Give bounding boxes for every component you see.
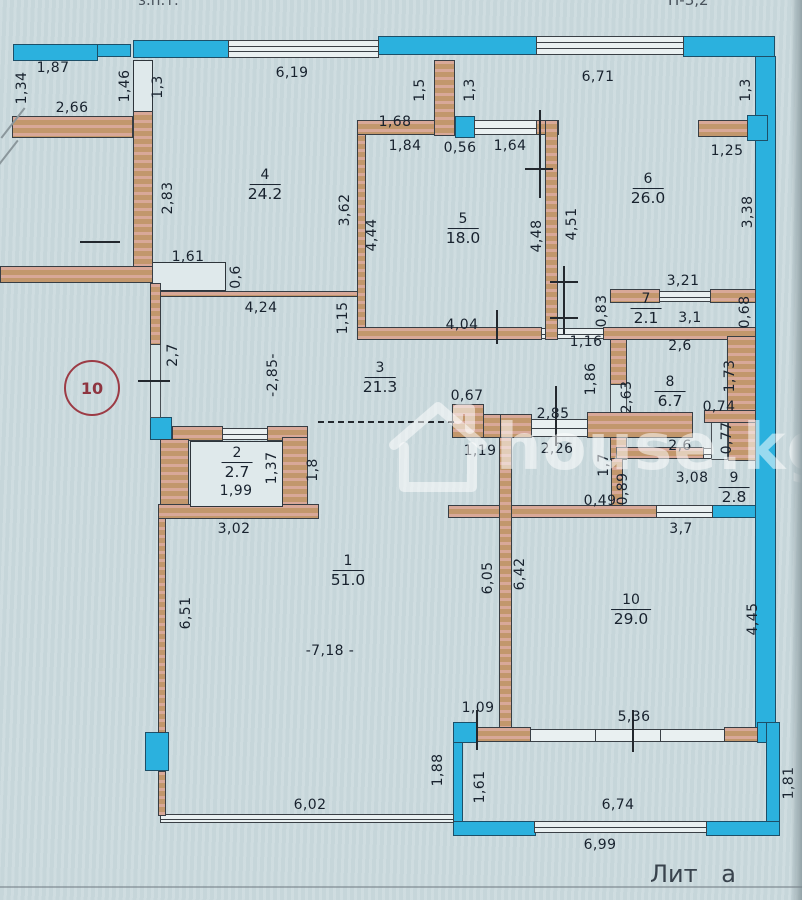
dimension-label: 1,3	[150, 75, 166, 98]
room-area: 51.0	[331, 572, 366, 588]
glazing-top-right	[683, 36, 775, 57]
dimension-label: 1,3	[462, 78, 478, 101]
dimension-label: 2,66	[56, 100, 89, 116]
dimension-label: 1,25	[711, 143, 744, 159]
room-area: 26.0	[631, 190, 666, 206]
wall	[545, 120, 558, 340]
dimension-label: 2,83	[160, 182, 176, 215]
balcony-corner-left	[453, 722, 477, 743]
dimension-label: 4,24	[245, 300, 278, 316]
dimension-label: 1,99	[220, 483, 253, 499]
top-fragment-right: Н-3,2	[668, 0, 709, 9]
dimension-label: 0,83	[594, 295, 610, 328]
room-area: 2.7	[222, 464, 253, 480]
witness-line	[539, 110, 541, 198]
witness-line	[563, 266, 565, 334]
dimension-label: -2,85-	[265, 353, 281, 397]
dimension-label: 5,36	[618, 709, 651, 725]
dimension-label: 6,19	[276, 65, 309, 81]
dimension-label: 1,3	[738, 78, 754, 101]
room-label-4: 424.2	[248, 166, 283, 202]
dimension-label: 0,56	[444, 140, 477, 156]
wall	[0, 266, 153, 283]
dimension-label: 1,09	[462, 700, 495, 716]
room-number: 10	[611, 593, 651, 610]
dimension-label: 2,6	[668, 338, 691, 354]
room-label-7: 72.1	[631, 290, 662, 326]
room-number: 1	[333, 554, 364, 571]
room-label-6: 626.0	[631, 170, 666, 206]
room-area: 18.0	[446, 230, 481, 246]
window-164	[474, 120, 537, 135]
window-top-2	[536, 36, 684, 55]
room-number: 9	[719, 471, 750, 488]
dimension-label: 3,08	[676, 470, 709, 486]
wall	[587, 412, 693, 438]
room-area: 6.7	[655, 393, 686, 409]
left-wall-window	[150, 417, 172, 440]
dimension-label: 4,45	[745, 603, 761, 636]
vent-window-1	[455, 116, 475, 138]
dimension-label: 2,7	[165, 343, 181, 366]
dimension-label: 1,84	[389, 138, 422, 154]
dimension-label: 0,49	[584, 493, 617, 509]
dimension-label: 0,6	[228, 265, 244, 288]
glazing-top-left	[13, 44, 98, 61]
dimension-label: 3,1	[678, 310, 701, 326]
window-31	[659, 291, 711, 302]
dimension-label: 4,44	[364, 219, 380, 252]
wall	[150, 283, 161, 345]
dimension-label: 6,99	[584, 837, 617, 853]
window-room10-top	[656, 505, 713, 518]
window-balcony-bottom	[534, 821, 707, 833]
dimension-label: 0,68	[737, 296, 753, 329]
room-label-1: 151.0	[331, 552, 366, 588]
room-label-9: 92.8	[719, 469, 750, 505]
dimension-label: 6,05	[480, 562, 496, 595]
stamp-circle-number: 10	[81, 379, 103, 398]
glazing-right-wall	[755, 56, 776, 741]
witness-line	[525, 168, 553, 170]
dimension-label: 1,61	[472, 771, 488, 804]
dimension-label: 1,16	[570, 334, 603, 350]
witness-line	[550, 281, 578, 283]
dimension-label: 1,34	[14, 72, 30, 105]
dimension-label: 0,67	[451, 388, 484, 404]
dimension-label: 1,86	[583, 363, 599, 396]
witness-line	[138, 380, 170, 382]
dimension-label: 1,61	[172, 249, 205, 265]
paper-fold	[0, 140, 19, 166]
wall	[160, 439, 189, 508]
balcony-bottom-right	[706, 821, 780, 836]
dimension-label: 1,7	[596, 453, 612, 476]
dimension-label: 1,8	[305, 458, 321, 481]
dimension-label: 2,85	[537, 406, 570, 422]
room-area: 2.1	[631, 310, 662, 326]
wall	[476, 727, 531, 742]
dimension-label: 1,87	[37, 60, 70, 76]
witness-line	[80, 241, 120, 243]
wall	[610, 339, 627, 385]
dimension-label: 1,68	[379, 114, 412, 130]
glazing-top-left-step	[97, 44, 131, 57]
floor-plan-page: 1,872,666,196,711,681,840,561,641,251,61…	[0, 0, 802, 900]
room-label-2: 22.7	[222, 444, 253, 480]
witness-line	[550, 317, 578, 319]
dimension-label: 6,74	[602, 797, 635, 813]
duct	[452, 404, 484, 438]
room-label-5: 518.0	[446, 210, 481, 246]
dimension-label: 1,73	[722, 360, 738, 393]
dimension-label: 1,19	[464, 443, 497, 459]
wall	[158, 771, 166, 816]
dimension-label: 6,02	[294, 797, 327, 813]
room-number: 7	[631, 292, 662, 309]
zone-dashed-line	[318, 421, 454, 423]
dimension-label: 1,46	[117, 70, 133, 103]
wall	[12, 116, 133, 138]
dimension-label: 3,38	[740, 196, 756, 229]
dimension-label: 3,62	[337, 194, 353, 227]
page-bottom-shadow	[0, 886, 802, 888]
dimension-label: 4,04	[446, 317, 479, 333]
glazing-block-125	[747, 115, 768, 141]
page-edge-shadow	[790, 0, 802, 900]
wall	[158, 518, 166, 733]
dimension-label: 4,48	[529, 220, 545, 253]
room-number: 8	[655, 375, 686, 392]
dimension-label: 3,21	[667, 273, 700, 289]
room-number: 5	[448, 212, 479, 229]
balcony-right-wall	[766, 722, 780, 836]
window-room2	[221, 428, 269, 440]
door-opening-06	[152, 262, 226, 291]
dimension-label: -7,18 -	[306, 643, 355, 659]
wall	[500, 414, 532, 438]
wall	[133, 111, 153, 268]
wall	[434, 60, 455, 136]
dimension-label: 0,89	[615, 473, 631, 506]
window-room10-bottom	[529, 729, 728, 742]
room-number: 2	[222, 446, 253, 463]
witness-line	[496, 310, 498, 344]
witness-line	[476, 710, 478, 750]
dimension-label: 2,6	[668, 438, 691, 454]
wall	[724, 727, 758, 742]
dimension-label: 1,5	[412, 78, 428, 101]
dimension-label: 6,51	[178, 597, 194, 630]
dimension-label: 1,37	[264, 452, 280, 485]
room-number: 6	[633, 172, 664, 189]
room-label-3: 321.3	[363, 359, 398, 395]
wall	[499, 437, 512, 734]
room-area: 29.0	[611, 611, 651, 627]
room-label-10: 1029.0	[611, 591, 651, 627]
dimension-label: 4,51	[564, 208, 580, 241]
dimension-label: 0,77	[719, 422, 735, 455]
french-window-602	[160, 814, 454, 823]
room10-top-glazing	[712, 505, 756, 518]
dimension-label: 6,42	[512, 558, 528, 591]
dimension-label: 0,74	[703, 399, 736, 415]
room-number: 3	[365, 361, 396, 378]
balcony-bottom-left	[453, 821, 536, 836]
glazing-top-b	[378, 36, 537, 55]
room-label-8: 86.7	[655, 373, 686, 409]
room-number: 4	[250, 168, 281, 185]
wall	[483, 414, 501, 438]
window-top-1	[228, 40, 379, 58]
dimension-label: 2,63	[619, 381, 635, 414]
dimension-label: 1,64	[494, 138, 527, 154]
room-area: 24.2	[248, 186, 283, 202]
stamp-circle: 10	[64, 360, 120, 416]
dimension-label: 1,88	[430, 754, 446, 787]
liter-label: Лит а	[650, 860, 736, 888]
wall	[152, 291, 358, 297]
dimension-label: 1,15	[335, 302, 351, 335]
bottom-left-window	[145, 732, 169, 771]
wall	[448, 505, 657, 518]
room-area: 21.3	[363, 379, 398, 395]
glazing-top-a	[133, 40, 229, 58]
dimension-label: 3,02	[218, 521, 251, 537]
dimension-label: 2,26	[541, 441, 574, 457]
room-area: 2.8	[719, 489, 750, 505]
dimension-label: 6,71	[582, 69, 615, 85]
dimension-label: 3,7	[669, 521, 692, 537]
wall	[698, 120, 748, 137]
top-fragment-left: з.п.т.	[138, 0, 179, 9]
